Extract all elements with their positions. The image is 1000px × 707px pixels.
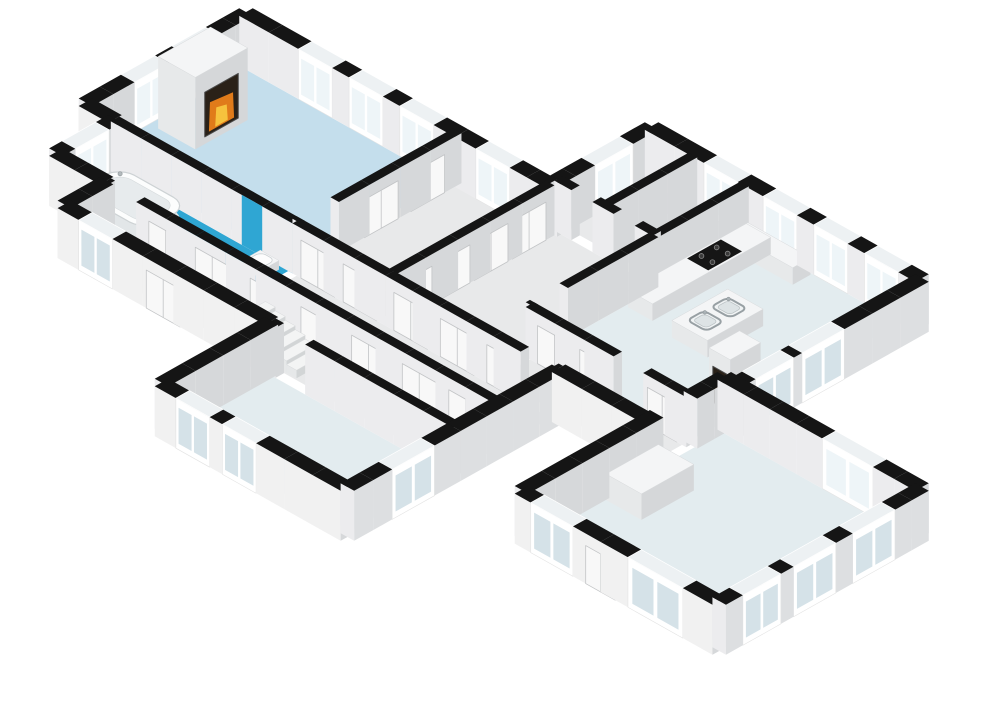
wall-int-nw-bed2 — [684, 382, 714, 449]
wall-int-storage-south — [554, 176, 579, 240]
floor-plan-3d-svg — [0, 0, 1000, 707]
floor-plan-stage — [0, 0, 1000, 707]
wall-ext-se-bed2 — [712, 588, 742, 655]
wall-ext-se-bed1 — [341, 473, 374, 541]
